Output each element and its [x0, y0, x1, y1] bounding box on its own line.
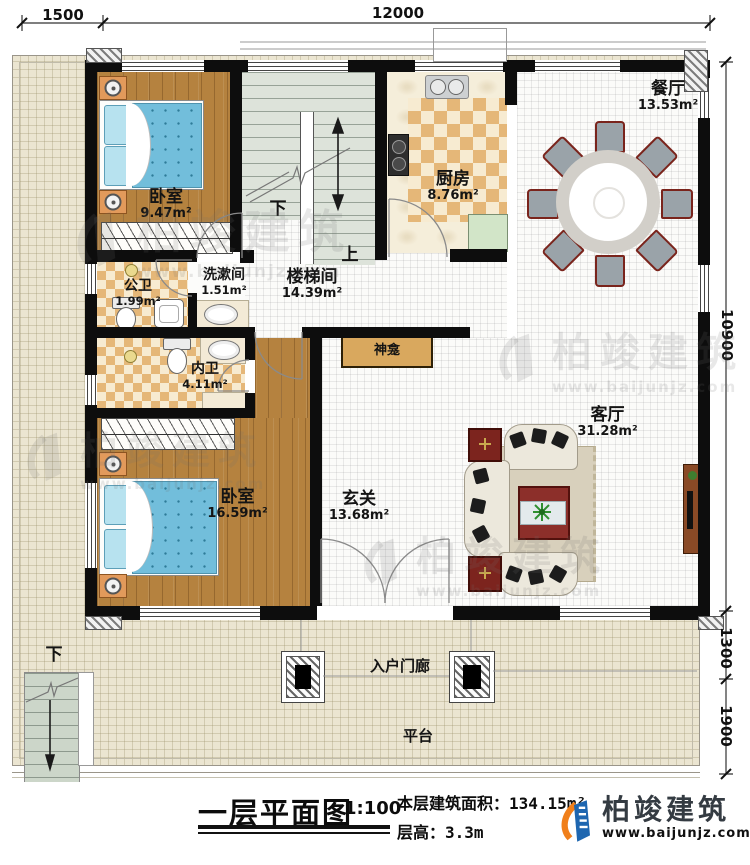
- floor-height-value: 3.3m: [445, 823, 484, 842]
- room-name: 客厅: [560, 406, 655, 425]
- floor-plan-canvas: 神龛: [0, 0, 750, 865]
- side-table: [468, 556, 502, 592]
- room-label-washroom: 洗漱间 1.51m²: [185, 268, 263, 297]
- stairs-stringer: [300, 112, 314, 264]
- room-name: 内卫: [170, 362, 240, 378]
- dining-table: [556, 150, 660, 254]
- wall-segment: [302, 327, 470, 338]
- room-area: 9.47m²: [116, 207, 216, 222]
- floor-height-label: 层高：: [397, 823, 445, 842]
- wall-segment: [85, 408, 255, 418]
- lamp-icon: [105, 578, 122, 595]
- stair-down-label: 下: [266, 200, 290, 219]
- room-area: 16.59m²: [190, 507, 285, 522]
- kitchen-sink: [425, 75, 469, 99]
- room-name: 餐厅: [613, 80, 723, 99]
- sofa-cushion: [505, 565, 523, 583]
- dim-right-10900: 10900: [720, 303, 736, 367]
- porch-column: [449, 651, 495, 703]
- platform-edge-line: [12, 772, 700, 773]
- room-name: 入户门廊: [350, 658, 450, 675]
- fridge: [468, 214, 508, 252]
- porch-column: [281, 651, 325, 703]
- room-name: 洗漱间: [185, 268, 263, 284]
- column-core: [295, 665, 311, 689]
- wall-segment: [85, 327, 255, 338]
- bed-bedroom1: [99, 100, 204, 190]
- wash-basin: [208, 340, 240, 360]
- room-area: 31.28m²: [560, 425, 655, 440]
- window: [248, 60, 348, 72]
- side-table: [468, 428, 502, 462]
- burner: [392, 140, 406, 154]
- room-name: 公卫: [107, 279, 169, 295]
- wall-segment: [698, 312, 710, 618]
- room-name: 卧室: [190, 488, 285, 507]
- wardrobe: [101, 418, 235, 450]
- sink-basin: [430, 79, 446, 95]
- wall-segment: [188, 293, 197, 327]
- porch-label: 入户门廊: [350, 658, 450, 675]
- nightstand: [99, 452, 127, 476]
- pier-hatch: [86, 48, 122, 63]
- coffee-table: [518, 486, 570, 540]
- sofa-cushion: [531, 428, 547, 444]
- sofa-cushion: [470, 498, 487, 515]
- lamp-icon: [105, 80, 122, 97]
- table-center-decor: [593, 187, 625, 219]
- room-label-dining: 餐厅 13.53m²: [613, 80, 723, 114]
- wall-segment: [375, 60, 387, 260]
- shrine-shelf: 神龛: [341, 336, 433, 368]
- outdoor-stair-down-label: 下: [42, 646, 66, 665]
- bedroom2-corridor-floor: [255, 338, 310, 418]
- stove: [388, 134, 409, 176]
- column-core: [463, 665, 481, 689]
- shower-pad: [202, 392, 248, 409]
- wall-segment: [240, 250, 254, 263]
- dim-top-1500: 1500: [33, 6, 93, 24]
- title-block: 一层平面图 1:100 本层建筑面积：134.15m² 层高：3.3m 柏竣建筑…: [0, 782, 750, 865]
- wall-segment: [245, 338, 255, 360]
- room-label-public-bath: 公卫 1.99m²: [107, 279, 169, 308]
- dining-chair: [527, 189, 559, 219]
- room-label-kitchen: 厨房 8.76m²: [408, 170, 498, 204]
- window: [535, 60, 620, 72]
- wall-segment: [260, 606, 317, 620]
- wall-segment: [230, 60, 242, 252]
- lamp-icon: [105, 456, 122, 473]
- sofa-cushion: [548, 564, 567, 583]
- drawing-scale: 1:100: [344, 798, 401, 819]
- outdoor-stairs-gutter: [78, 672, 94, 766]
- room-area: 13.68m²: [315, 509, 403, 524]
- window: [85, 375, 97, 405]
- floor-area-label: 本层建筑面积：: [397, 794, 509, 813]
- room-name: 卧室: [116, 188, 216, 207]
- title-underline: [198, 832, 390, 834]
- room-area: 1.99m²: [107, 295, 169, 308]
- nightstand: [99, 574, 127, 598]
- stair-up-label: 上: [338, 246, 362, 265]
- room-name: 玄关: [315, 490, 403, 509]
- room-label-inner-bath: 内卫 4.11m²: [170, 362, 240, 391]
- window: [560, 606, 650, 620]
- dim-right-1300: 1300: [719, 616, 735, 680]
- washer-lid: [159, 305, 179, 323]
- dining-chair: [595, 121, 625, 153]
- room-area: 13.53m²: [613, 99, 723, 114]
- room-area: 8.76m²: [408, 189, 498, 204]
- table-inlay: [484, 438, 486, 450]
- dim-top-12000: 12000: [358, 4, 438, 22]
- sofa-left: [464, 460, 510, 558]
- wall-segment: [188, 250, 197, 262]
- window: [85, 264, 97, 294]
- dining-chair: [661, 189, 693, 219]
- brand-logo-icon: [550, 790, 598, 852]
- wall-segment: [453, 606, 560, 620]
- platform-label: 平台: [383, 728, 453, 745]
- outdoor-stairs: [24, 672, 80, 794]
- room-label-stairwell: 楼梯间 14.39m²: [262, 268, 362, 302]
- pier-hatch: [85, 616, 122, 630]
- room-name: 厨房: [408, 170, 498, 189]
- ceiling-lamp-icon: [125, 264, 138, 277]
- plant-icon: [531, 501, 553, 523]
- title-underline: [198, 825, 390, 829]
- dim-right-1900: 1900: [719, 694, 735, 758]
- room-area: 4.11m²: [170, 378, 240, 391]
- stair-direction-text: 下: [42, 646, 66, 665]
- plant-dot-icon: [688, 471, 697, 480]
- shrine-label: 神龛: [374, 343, 400, 358]
- wall-segment: [698, 118, 710, 265]
- wash-basin: [204, 304, 238, 325]
- bay-outline: [433, 28, 507, 62]
- nightstand: [99, 76, 127, 100]
- wall-segment: [310, 338, 322, 606]
- sofa-cushion: [472, 525, 491, 544]
- brand-text: 柏竣建筑 www.baijunjz.com: [602, 795, 750, 841]
- room-label-bedroom2: 卧室 16.59m²: [190, 488, 285, 522]
- room-label-living: 客厅 31.28m²: [560, 406, 655, 440]
- stair-direction-text: 上: [338, 246, 362, 265]
- sofa-bottom: [498, 552, 578, 596]
- floor-height-row: 层高：3.3m: [397, 819, 484, 843]
- brand-name: 柏竣建筑: [602, 795, 750, 826]
- room-name: 楼梯间: [262, 268, 362, 287]
- room-label-hall: 玄关 13.68m²: [315, 490, 403, 524]
- room-label-bedroom1: 卧室 9.47m²: [116, 188, 216, 222]
- room-area: 14.39m²: [262, 287, 362, 302]
- tv-icon: [687, 491, 693, 529]
- wall-segment: [85, 250, 197, 262]
- room-name: 平台: [383, 728, 453, 745]
- window: [140, 606, 260, 620]
- sofa-cushion: [472, 467, 489, 484]
- table-inlay: [484, 567, 486, 579]
- window: [85, 483, 97, 568]
- burner: [392, 157, 406, 171]
- dining-chair: [595, 255, 625, 287]
- brand-url: www.baijunjz.com: [602, 826, 750, 841]
- wall-segment: [85, 60, 97, 264]
- sink-basin: [448, 79, 464, 95]
- wall-segment: [505, 60, 517, 105]
- window: [122, 60, 204, 72]
- sofa-cushion: [528, 569, 545, 586]
- stair-direction-text: 下: [266, 200, 290, 219]
- ceiling-lamp-icon: [124, 350, 137, 363]
- room-area: 1.51m²: [185, 284, 263, 297]
- sofa-cushion: [509, 431, 527, 449]
- wall-segment: [450, 249, 507, 262]
- platform-edge-line: [12, 777, 700, 778]
- window: [698, 265, 710, 312]
